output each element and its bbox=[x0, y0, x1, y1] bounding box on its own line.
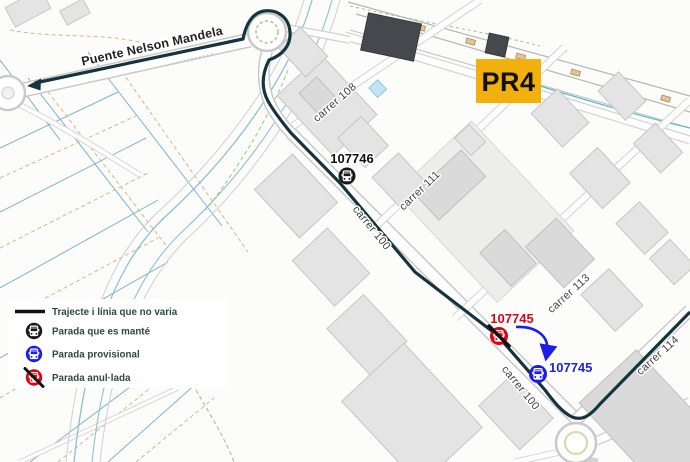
legend-item-label: Trajecte i línia que no varia bbox=[52, 307, 178, 318]
stop-cancelled-label: 107745 bbox=[490, 311, 533, 326]
roundabout-bottom bbox=[556, 423, 596, 462]
route-badge-label: PR4 bbox=[481, 67, 535, 97]
legend-item-label: Parada que es manté bbox=[52, 327, 151, 338]
roundabout-left bbox=[0, 76, 25, 110]
legend-bus-kept-icon bbox=[26, 323, 42, 339]
map-canvas[interactable]: Puente Nelson Mandela carrer 108 carrer … bbox=[0, 0, 690, 462]
stop-kept-label: 107746 bbox=[330, 151, 373, 166]
legend-item-label: Parada provisional bbox=[52, 350, 140, 361]
legend-bus-provisional-icon bbox=[26, 346, 42, 362]
bus-provisional-icon bbox=[529, 365, 547, 383]
stop-provisional-label: 107745 bbox=[549, 360, 592, 375]
legend-item-label: Parada anul·lada bbox=[52, 373, 131, 384]
route-badge: PR4 bbox=[476, 59, 541, 103]
bus-kept-icon bbox=[339, 168, 356, 185]
map-screenshot: Puente Nelson Mandela carrer 108 carrer … bbox=[0, 0, 690, 462]
legend: Trajecte i línia que no varia Parada que… bbox=[8, 299, 228, 388]
